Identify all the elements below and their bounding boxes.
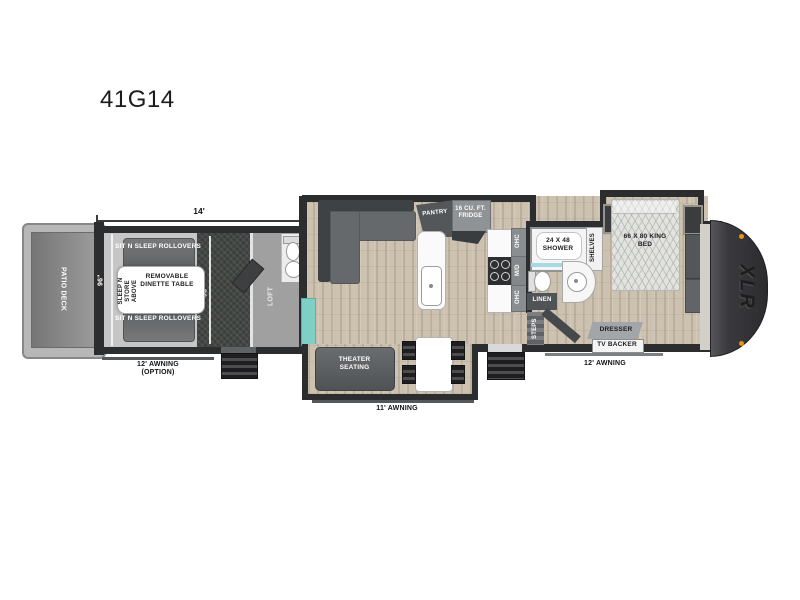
dinette-table-label: REMOVABLE DINETTE TABLE [135,273,199,289]
garage-length-dim-line [97,220,302,222]
linen-label: LINEN [527,297,557,304]
king-bed-label: 66 X 80 KING BED [616,233,674,249]
page-title: 41G14 [100,86,175,114]
main-entry-steps [487,352,525,380]
garage-length-dim-label: 14' [182,206,216,218]
marker-light-bottom [739,341,744,346]
marker-light-top [739,234,744,239]
floorplan-page: 41G14 14' PATIO DECK 96" 98" SIT N SLEEP… [0,0,800,600]
burner-4 [501,272,510,281]
kitchen-faucet [429,284,433,288]
rollover-sofa-bottom-label: SIT N SLEEP ROLLOVERS [113,315,203,323]
garage-width-dim-line-rear [111,234,113,346]
garage-entry-steps [221,353,258,379]
toilet-fixture [534,271,551,292]
dresser-label: DRESSER [594,326,638,334]
bedroom-awning-label: 12' AWNING [570,360,640,367]
brand-logo: XLR [733,250,759,324]
microwave-label: M/D [511,256,526,284]
garage-bottom-wall [94,347,308,354]
bed-pillows [613,201,676,214]
fridge-label: 16 CU. FT. FRIDGE [453,206,488,220]
bed-slide-top-wall [600,190,704,197]
sleep-n-store-line1: SLEEP N STORE [118,278,131,305]
burner-1 [490,260,499,269]
sectional-seat-left [330,211,360,284]
bath-shelves-label: SHELVES [586,229,601,267]
loft-label: LOFT [266,281,277,311]
entertainment-center [301,298,316,346]
garage-awning-label: 12' AWNING [95,361,221,368]
shower-label: 24 X 48 SHOWER [532,237,584,253]
garage-top-wall [94,226,308,233]
dining-table [415,337,453,392]
vanity-faucet [574,279,578,283]
main-entry-threshold [488,344,522,352]
living-awning-label: 11' AWNING [357,405,437,412]
interior-steps-label: STEPS [529,315,542,343]
sleep-n-store-line2: ABOVE [132,280,138,302]
dining-chair-4 [451,365,465,384]
patio-deck-label: PATIO DECK [56,262,69,317]
dining-chair-2 [402,365,416,384]
theater-seating-label: THEATER SEATING [327,356,382,372]
living-awning-bar [312,400,474,403]
garage-awning-option-label: (OPTION) [95,369,221,376]
dining-chair-1 [402,341,416,360]
bedroom-awning-bar [545,353,663,356]
tv-backer-label: TV BACKER [594,341,640,349]
ohc-bottom-label: OHC [511,285,526,310]
burner-2 [501,260,510,269]
burner-3 [490,272,499,281]
ohc-top-label: OHC [511,228,526,255]
theater-slide-right-wall [472,344,478,400]
garage-awning-bar [102,357,214,360]
garage-width-rear-label: 96" [96,263,107,297]
dining-chair-3 [451,341,465,360]
rollover-sofa-top-label: SIT N SLEEP ROLLOVERS [113,243,203,251]
sleep-n-store-label: SLEEP N STORE ABOVE [118,268,136,314]
half-bath-toilet [286,242,300,261]
